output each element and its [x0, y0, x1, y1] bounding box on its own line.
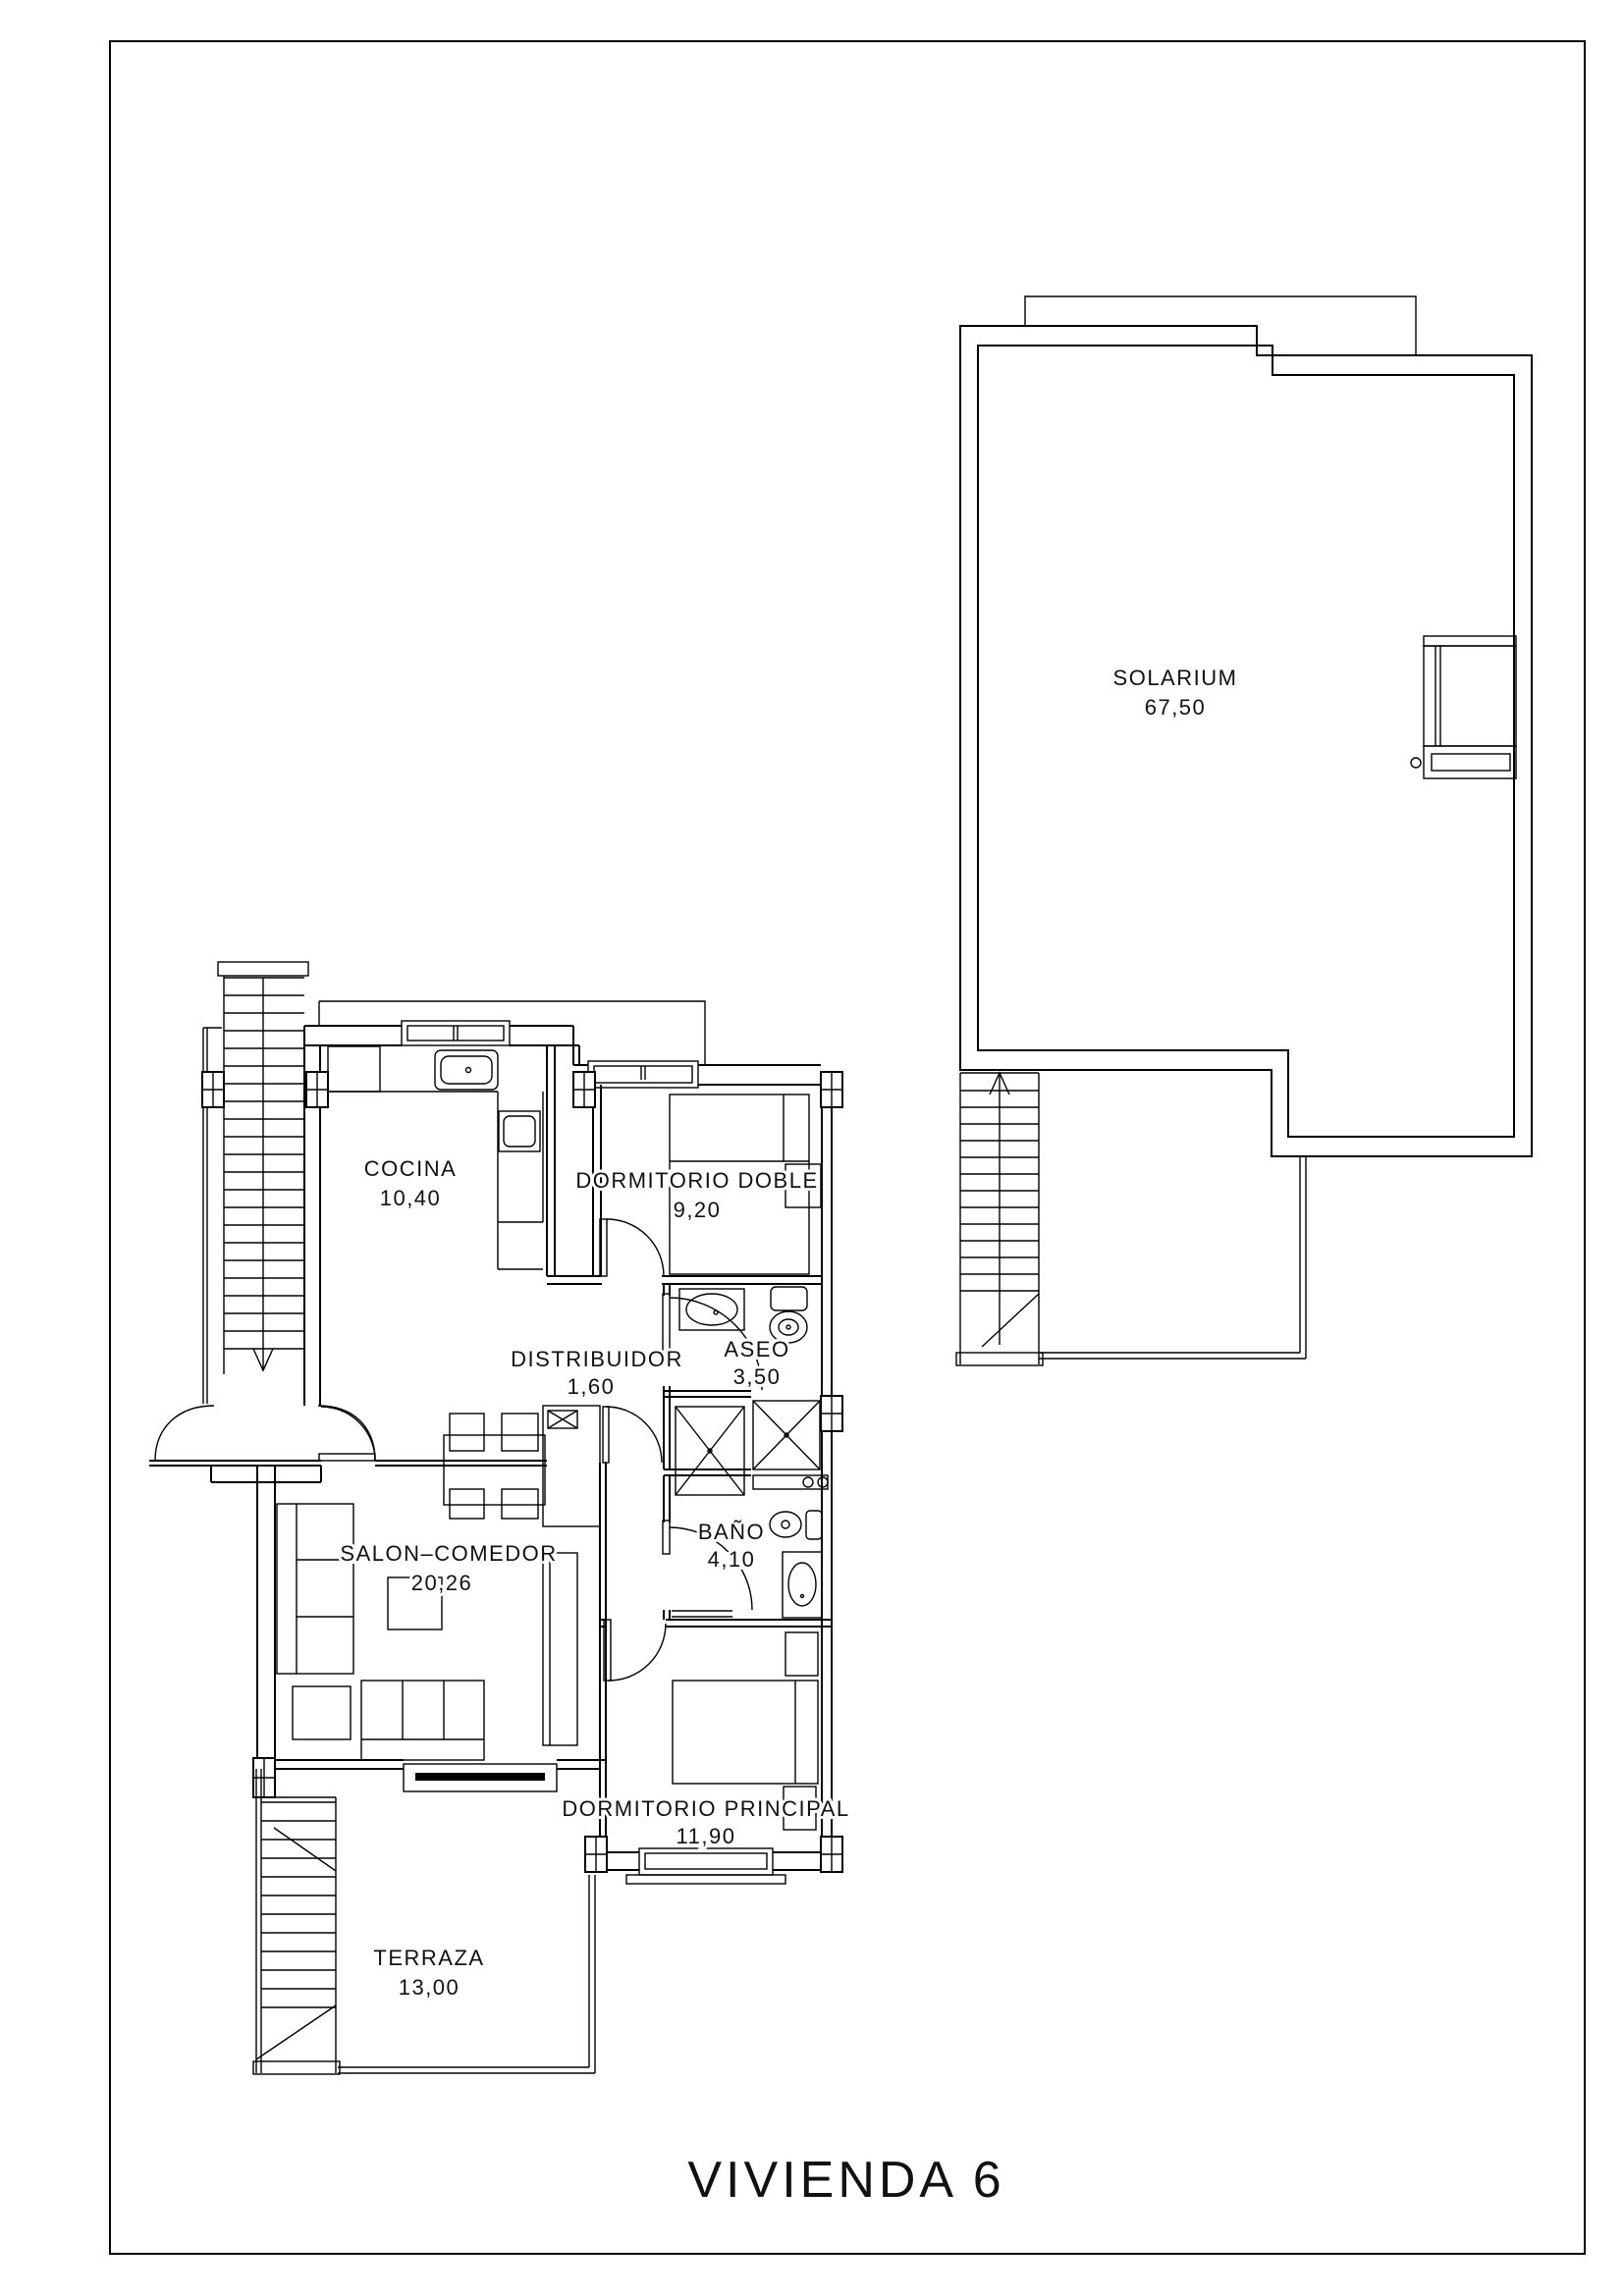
shelf — [753, 1475, 828, 1489]
sideboard — [543, 1406, 600, 1526]
room-area-distribuidor: 1,60 — [568, 1374, 616, 1399]
kitchen-hob — [499, 1111, 540, 1151]
kitchen-window — [402, 1021, 510, 1045]
room-label-distribuidor: DISTRIBUIDOR — [511, 1347, 683, 1371]
sofa-two-seat — [361, 1681, 484, 1760]
room-label-salon-comedor: SALON–COMEDOR — [340, 1541, 557, 1566]
bathroom-fixtures — [770, 1511, 822, 1618]
room-area-salon-comedor: 20,26 — [411, 1571, 473, 1595]
room-area-terraza: 13,00 — [399, 1975, 460, 2000]
plan-title: VIVIENDA 6 — [687, 2152, 1004, 2209]
roof-outline — [319, 1001, 705, 1066]
room-label-dormitorio-doble: DORMITORIO DOBLE — [575, 1168, 818, 1193]
room-label-aseo: ASEO — [724, 1337, 789, 1362]
room-label-solarium: SOLARIUM — [1113, 666, 1238, 690]
room-area-cocina: 10,40 — [380, 1186, 442, 1210]
terraza-stairs — [253, 1769, 340, 2074]
room-area-solarium: 67,50 — [1145, 695, 1207, 720]
entry-door — [319, 1407, 375, 1461]
room-area-dormitorio-principal: 11,90 — [677, 1824, 736, 1848]
shower-trays — [676, 1401, 828, 1495]
shower-right — [753, 1401, 820, 1469]
entry-porch — [155, 1406, 375, 1461]
room-label-bano: BAÑO — [698, 1520, 765, 1544]
solarium-balcony-detail — [1411, 636, 1516, 778]
bathroom-toilet — [770, 1511, 822, 1539]
floorplan-canvas: SOLARIUM 67,50 — [0, 0, 1624, 2296]
dormitorio-principal-door — [604, 1620, 666, 1681]
room-area-dormitorio-doble: 9,20 — [674, 1198, 722, 1222]
solarium-lower-terrace — [1039, 1156, 1306, 1359]
solarium-plan: SOLARIUM 67,50 — [956, 296, 1532, 1365]
salon-sliding-window — [404, 1764, 557, 1791]
dormitorio-doble-door — [600, 1219, 664, 1276]
dormitorio-doble-window — [588, 1061, 698, 1088]
side-table — [293, 1686, 351, 1739]
room-label-cocina: COCINA — [364, 1156, 458, 1181]
dormitorio-principal-window — [626, 1848, 785, 1884]
drawing-sheet: SOLARIUM 67,50 — [0, 0, 1624, 2296]
solarium-stairs — [956, 1073, 1043, 1365]
walls — [149, 1026, 832, 1870]
shower-left — [676, 1407, 744, 1495]
entry-stairs — [218, 962, 308, 1374]
main-bed — [673, 1681, 818, 1784]
aseo-toilet — [770, 1287, 807, 1343]
page-border — [110, 41, 1585, 2254]
terraza-outline — [253, 1769, 595, 2074]
kitchen-sink — [435, 1050, 498, 1090]
room-area-aseo: 3,50 — [733, 1364, 782, 1389]
bathtub — [783, 1552, 822, 1618]
room-area-bano: 4,10 — [708, 1547, 756, 1572]
nightstand — [785, 1632, 818, 1676]
tv-unit — [543, 1553, 577, 1745]
room-label-terraza: TERRAZA — [373, 1946, 484, 1970]
ground-floor-plan: COCINA 10,40 DORMITORIO DOBLE 9,20 DISTR… — [149, 962, 850, 2074]
salon-door — [603, 1407, 662, 1463]
sofa-three-seat — [277, 1504, 353, 1674]
room-label-dormitorio-principal: DORMITORIO PRINCIPAL — [562, 1796, 849, 1821]
